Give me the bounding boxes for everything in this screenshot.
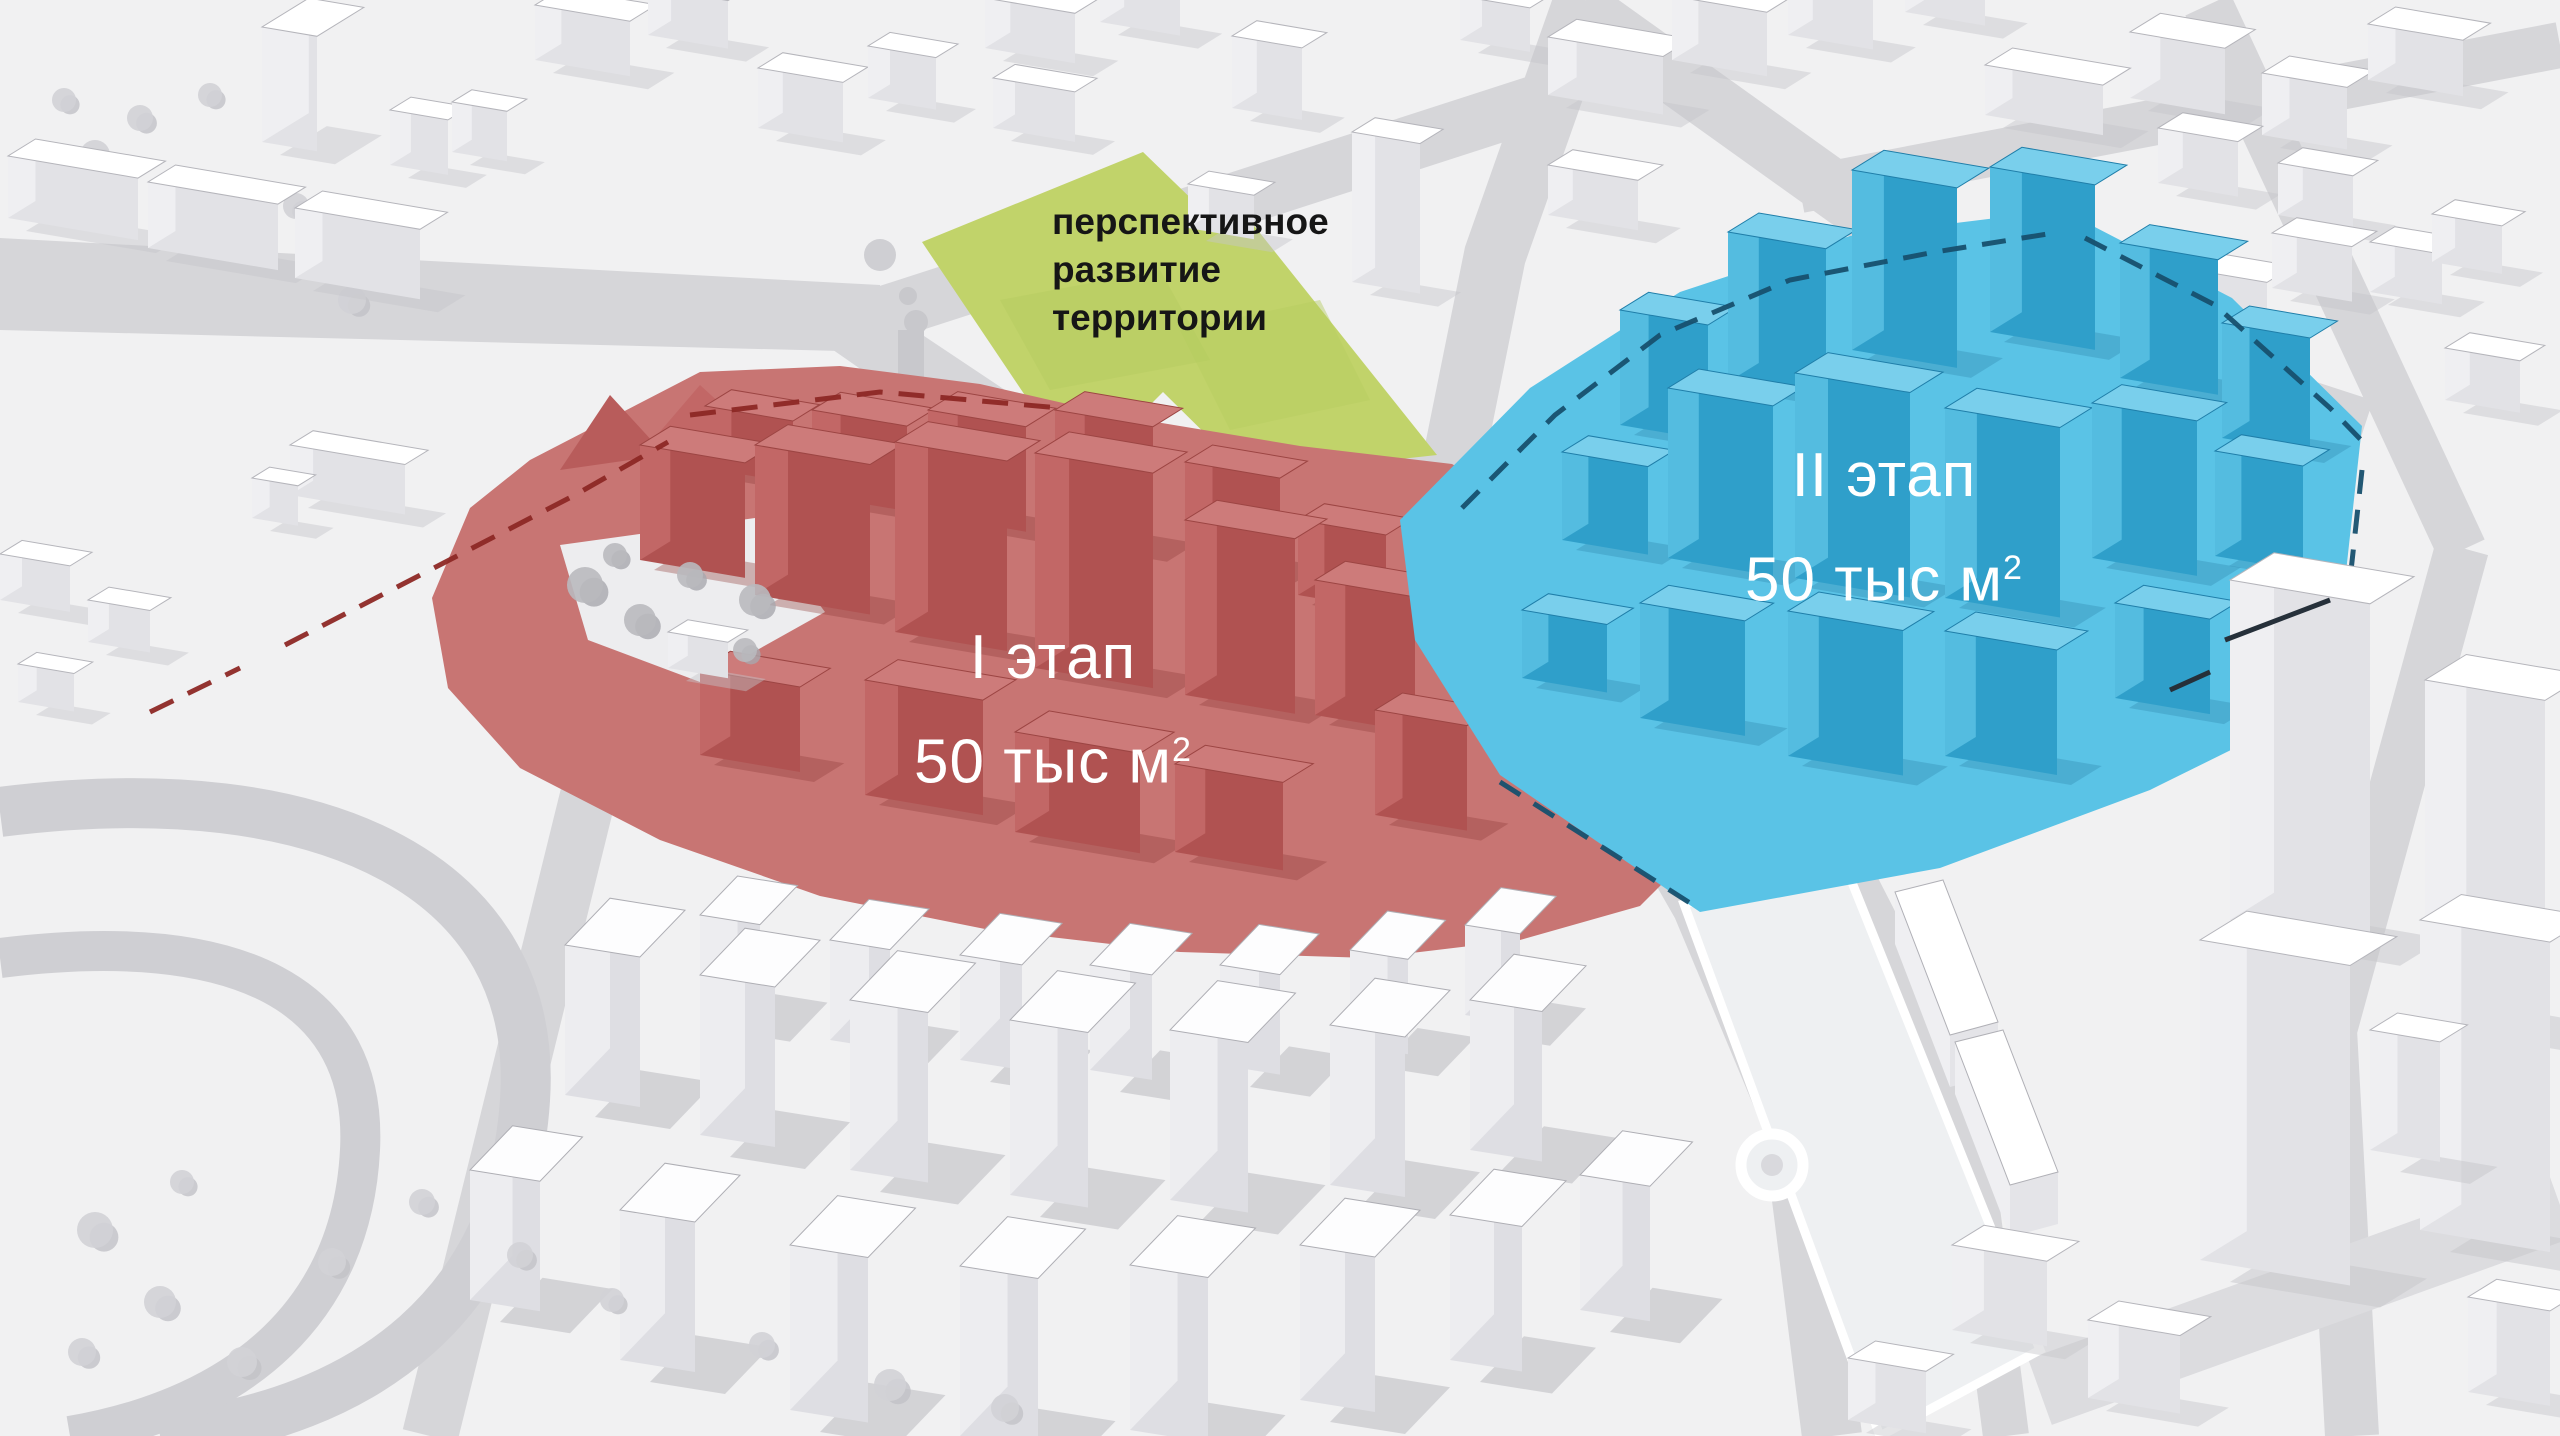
label-line: территории: [1052, 294, 1329, 342]
phase1-name: I этап: [914, 612, 1192, 704]
future-development-label: перспективное развитие территории: [1052, 198, 1329, 342]
phase1-label: I этап 50 тыс м2: [914, 612, 1192, 809]
phase2-name: II этап: [1745, 430, 2023, 522]
label-line: перспективное: [1052, 198, 1329, 246]
masterplan-render: перспективное развитие территории I этап…: [0, 0, 2560, 1436]
phase2-area-value: 50 тыс м2: [1745, 522, 2023, 627]
phase2-label: II этап 50 тыс м2: [1745, 430, 2023, 627]
label-line: развитие: [1052, 246, 1329, 294]
phase1-area-value: 50 тыс м2: [914, 704, 1192, 809]
